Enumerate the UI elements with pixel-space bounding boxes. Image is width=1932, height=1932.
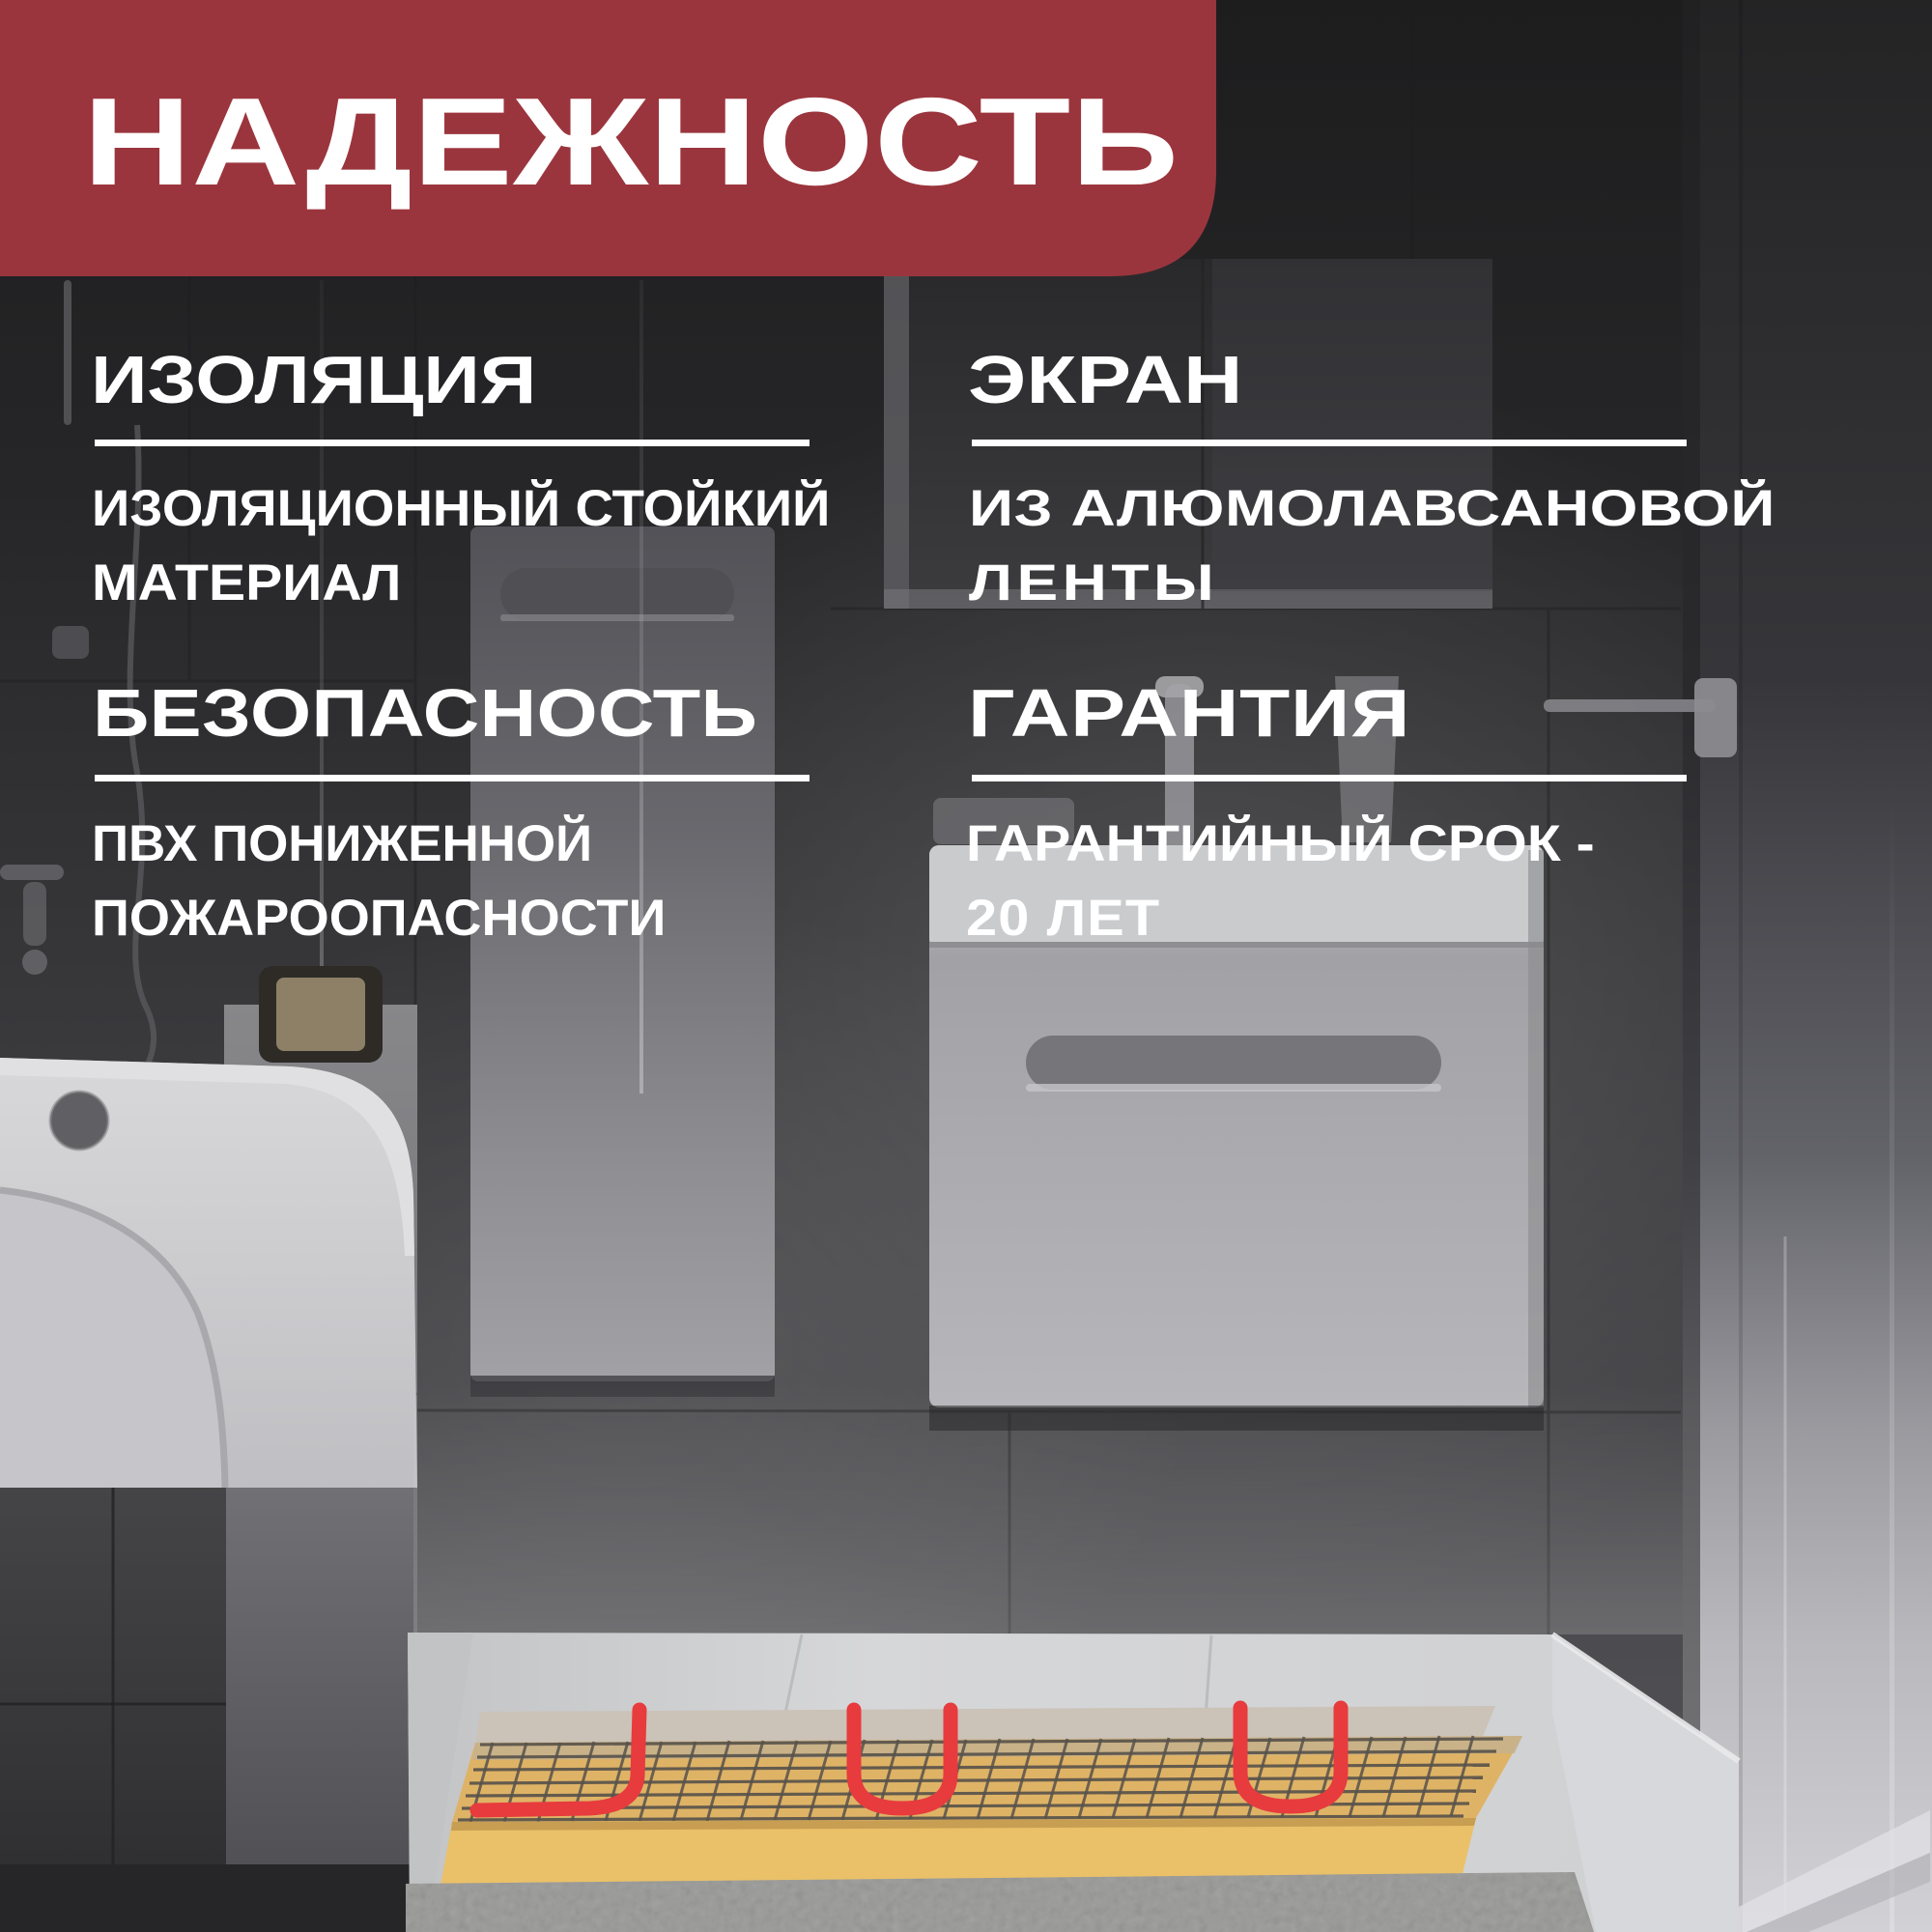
svg-text:ПВХ ПОНИЖЕННОЙ: ПВХ ПОНИЖЕННОЙ [92,813,592,872]
svg-text:ГАРАНТИЯ: ГАРАНТИЯ [968,674,1410,751]
svg-text:ПОЖАРООПАСНОСТИ: ПОЖАРООПАСНОСТИ [92,891,666,947]
svg-text:БЕЗОПАСНОСТЬ: БЕЗОПАСНОСТЬ [93,675,757,751]
svg-text:ИЗОЛЯЦИОННЫЙ СТОЙКИЙ: ИЗОЛЯЦИОННЫЙ СТОЙКИЙ [92,479,830,537]
svg-text:МАТЕРИАЛ: МАТЕРИАЛ [92,554,401,611]
svg-text:ГАРАНТИЙНЫЙ СРОК -: ГАРАНТИЙНЫЙ СРОК - [966,813,1595,871]
svg-text:20 ЛЕТ: 20 ЛЕТ [966,889,1160,946]
svg-text:НАДЕЖНОСТЬ: НАДЕЖНОСТЬ [83,72,1179,212]
svg-text:ЛЕНТЫ: ЛЕНТЫ [969,554,1214,611]
svg-text:ЭКРАН: ЭКРАН [968,343,1242,417]
svg-text:ИЗОЛЯЦИЯ: ИЗОЛЯЦИЯ [91,342,536,417]
svg-text:ИЗ АЛЮМОЛАВСАНОВОЙ: ИЗ АЛЮМОЛАВСАНОВОЙ [969,479,1775,537]
